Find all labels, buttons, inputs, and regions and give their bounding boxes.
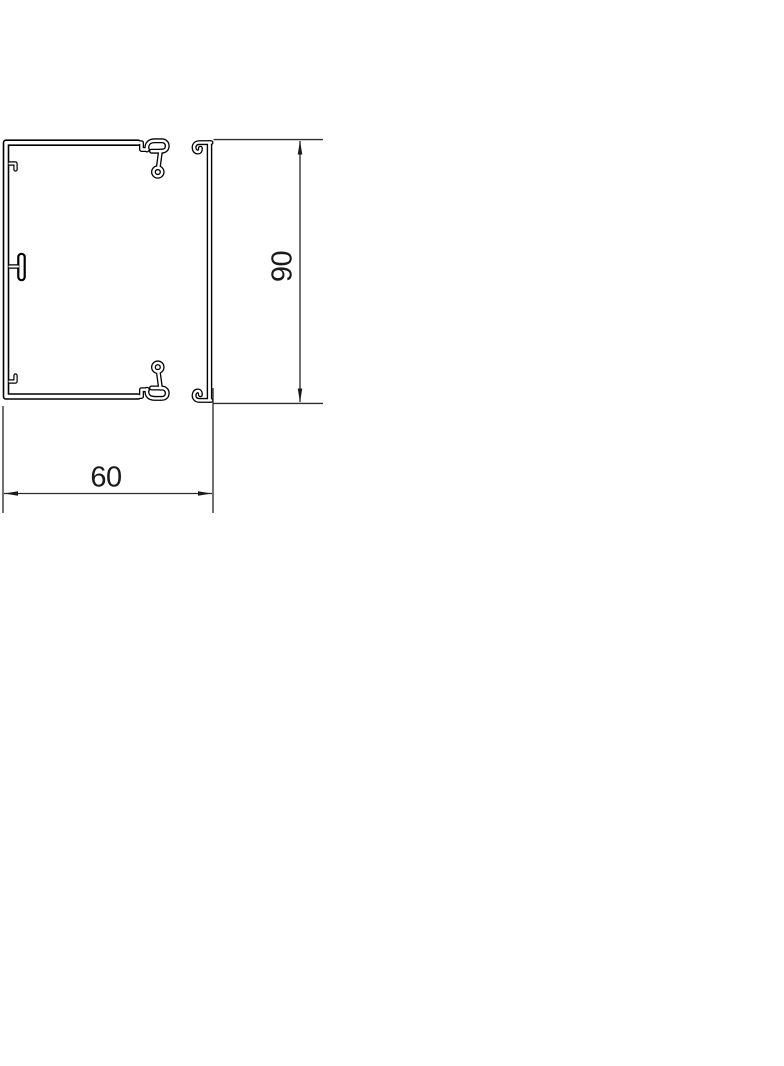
width-arrow-right [198, 491, 212, 496]
channel-profile-outline [6, 141, 167, 399]
cover-profile [194, 143, 211, 401]
channel-profile-hollow [6, 141, 167, 399]
channel-profile [6, 141, 167, 399]
height-dimension-label: 90 [267, 251, 299, 282]
cover-profile-hollow [194, 143, 211, 401]
height-arrow-up [298, 141, 303, 155]
technical-drawing: 90 60 [0, 0, 784, 1066]
width-dimension: 60 [3, 388, 213, 513]
height-arrow-down [298, 389, 303, 403]
drawing-canvas: 90 60 [0, 0, 784, 1066]
width-arrow-left [4, 491, 18, 496]
width-dimension-label: 60 [90, 462, 121, 494]
height-dimension: 90 [214, 140, 324, 404]
